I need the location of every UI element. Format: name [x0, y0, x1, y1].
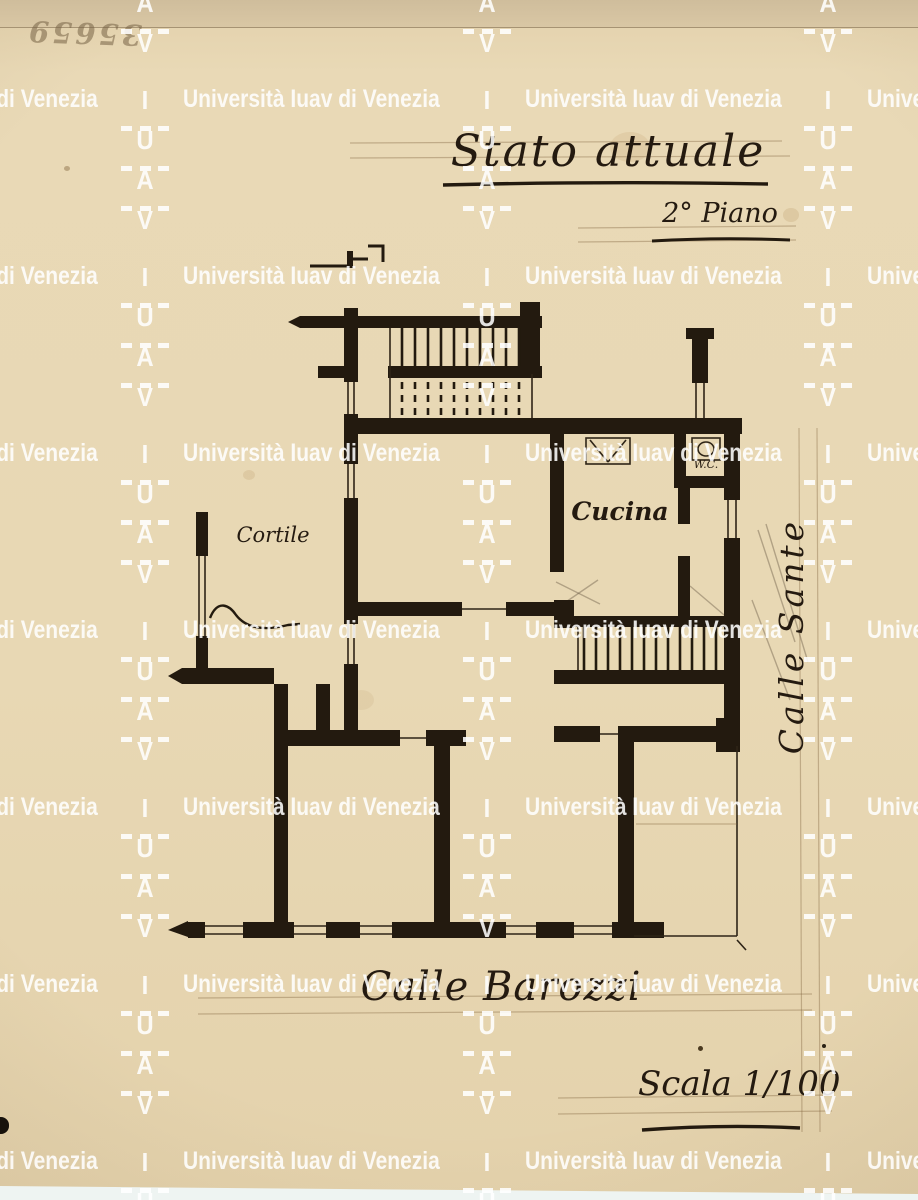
wc-fixture-icon	[692, 438, 720, 460]
neighbour-outline	[634, 746, 746, 950]
street-label-bottom: Calle Barozzi	[356, 964, 646, 1010]
street-label-right: Calle Sante	[772, 500, 811, 772]
scanned-drawing: 35659 Stato attuale 2° Piano Cortile Cuc…	[0, 0, 918, 1200]
drawing-title: Stato attuale	[438, 126, 778, 177]
freehand-wall-line	[210, 606, 300, 628]
roof-vent-symbol	[310, 246, 383, 268]
scale-label: Scala 1/100	[638, 1064, 814, 1104]
room-label-cucina: Cucina	[558, 497, 682, 526]
stove-flue-symbol	[586, 438, 630, 464]
archive-number: 35659	[23, 14, 144, 52]
floor-label: 2° Piano	[640, 198, 800, 229]
room-label-cortile: Cortile	[218, 523, 328, 547]
staircase-lower	[554, 600, 740, 684]
room-label-wc: W.C.	[684, 458, 728, 471]
staircase-upper	[356, 302, 542, 418]
